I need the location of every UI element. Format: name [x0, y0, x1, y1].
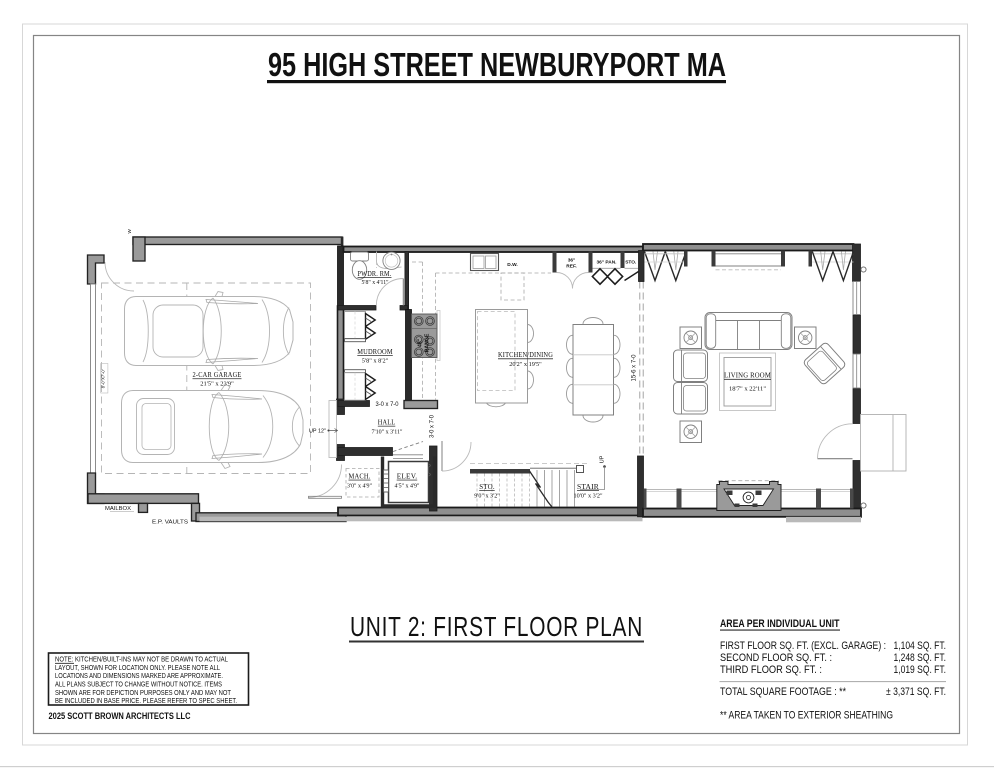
svg-text:LOCATIONS AND DIMENSIONS MARKE: LOCATIONS AND DIMENSIONS MARKED ARE APPR… [55, 673, 223, 680]
svg-text:8'-0"X7'-0": 8'-0"X7'-0" [101, 368, 106, 388]
svg-text:SHOWN ARE FOR DEPICTION PURPOS: SHOWN ARE FOR DEPICTION PURPOSES ONLY AN… [55, 690, 232, 697]
svg-text:4'5" x 4'9": 4'5" x 4'9" [395, 482, 420, 489]
svg-text:15-6 x 7-0: 15-6 x 7-0 [632, 354, 638, 382]
svg-text:48": 48" [418, 338, 424, 347]
svg-text:21'5" x 23'9": 21'5" x 23'9" [200, 381, 234, 388]
svg-text:UNIT 2: FIRST FLOOR PLAN: UNIT 2: FIRST FLOOR PLAN [350, 611, 643, 642]
svg-text:1,104 SQ. FT.: 1,104 SQ. FT. [894, 640, 947, 652]
svg-text:1,019 SQ. FT.: 1,019 SQ. FT. [894, 664, 947, 676]
svg-text:2025 SCOTT BROWN ARCHITECTS LL: 2025 SCOTT BROWN ARCHITECTS LLC [49, 711, 191, 722]
svg-text:REF.: REF. [566, 264, 576, 270]
svg-text:SECOND FLOOR SQ. FT. :: SECOND FLOOR SQ. FT. : [720, 652, 832, 664]
svg-text:KITCHEN/DINING: KITCHEN/DINING [498, 350, 553, 359]
svg-text:10'0" x 3'2": 10'0" x 3'2" [574, 493, 603, 500]
svg-text:36" PAN.: 36" PAN. [596, 260, 616, 266]
svg-text:5'8" x 8'2": 5'8" x 8'2" [362, 357, 389, 364]
svg-text:36": 36" [568, 258, 576, 264]
svg-text:** AREA TAKEN TO EXTERIOR SHEA: ** AREA TAKEN TO EXTERIOR SHEATHING [720, 710, 893, 722]
svg-text:18'7" x 22'11": 18'7" x 22'11" [729, 386, 766, 393]
svg-text:MAILBOX: MAILBOX [105, 506, 131, 512]
svg-text:5'8" x 4'11": 5'8" x 4'11" [362, 279, 389, 286]
svg-text:LAYOUT, SHOWN FOR LOCATION ONL: LAYOUT, SHOWN FOR LOCATION ONLY. PLEASE … [55, 665, 220, 672]
svg-text:20'2" x 19'5": 20'2" x 19'5" [509, 361, 542, 368]
svg-text:± 3,371 SQ. FT.: ± 3,371 SQ. FT. [886, 686, 946, 698]
svg-text:1,248 SQ. FT.: 1,248 SQ. FT. [894, 652, 947, 664]
svg-text:STO.: STO. [625, 260, 636, 266]
svg-text:HALL: HALL [378, 418, 396, 427]
svg-text:NOTE: KITCHEN/BUILT-INS MAY NO: NOTE: KITCHEN/BUILT-INS MAY NOT BE DRAWN… [55, 657, 228, 664]
svg-text:AREA PER INDIVIDUAL UNIT: AREA PER INDIVIDUAL UNIT [720, 618, 840, 630]
svg-text:LIVING ROOM: LIVING ROOM [724, 371, 771, 380]
svg-text:STO.: STO. [479, 482, 495, 491]
svg-text:95 HIGH STREET NEWBURYPORT MA: 95 HIGH STREET NEWBURYPORT MA [268, 46, 726, 83]
svg-text:BE INCLUDED IN BASE PRICE. PLE: BE INCLUDED IN BASE PRICE. PLEASE REFER … [55, 698, 237, 705]
svg-text:E.P. VAULTS: E.P. VAULTS [152, 520, 188, 526]
svg-text:3-0 x 7-0: 3-0 x 7-0 [376, 402, 400, 408]
svg-text:UP: UP [600, 455, 606, 463]
svg-text:3'0" x 4'9": 3'0" x 4'9" [347, 482, 372, 489]
svg-text:PWDR. RM.: PWDR. RM. [358, 269, 392, 278]
svg-text:7'10" x 3'11": 7'10" x 3'11" [372, 429, 403, 436]
svg-text:ELEV.: ELEV. [397, 472, 418, 481]
svg-text:2-CAR GARAGE: 2-CAR GARAGE [193, 370, 242, 379]
svg-text:MUDROOM: MUDROOM [357, 347, 393, 356]
svg-text:RANGE: RANGE [425, 333, 431, 352]
svg-text:FIRST FLOOR SQ. FT. (EXCL. GAR: FIRST FLOOR SQ. FT. (EXCL. GARAGE) : [720, 640, 886, 652]
svg-text:9'0" x 3'2": 9'0" x 3'2" [474, 493, 500, 500]
svg-text:UP 12": UP 12" [309, 429, 326, 435]
svg-text:MACH.: MACH. [349, 472, 371, 481]
svg-text:ALL PLANS SUBJECT TO CHANGE WI: ALL PLANS SUBJECT TO CHANGE WITHOUT NOTI… [55, 682, 222, 689]
svg-text:THIRD FLOOR SQ. FT. :: THIRD FLOOR SQ. FT. : [720, 664, 822, 676]
svg-text:D.W.: D.W. [507, 262, 517, 268]
svg-text:TOTAL SQUARE FOOTAGE : **: TOTAL SQUARE FOOTAGE : ** [720, 686, 846, 698]
svg-text:STAIR: STAIR [577, 482, 599, 491]
svg-text:3-0 x 7-0: 3-0 x 7-0 [430, 414, 436, 438]
